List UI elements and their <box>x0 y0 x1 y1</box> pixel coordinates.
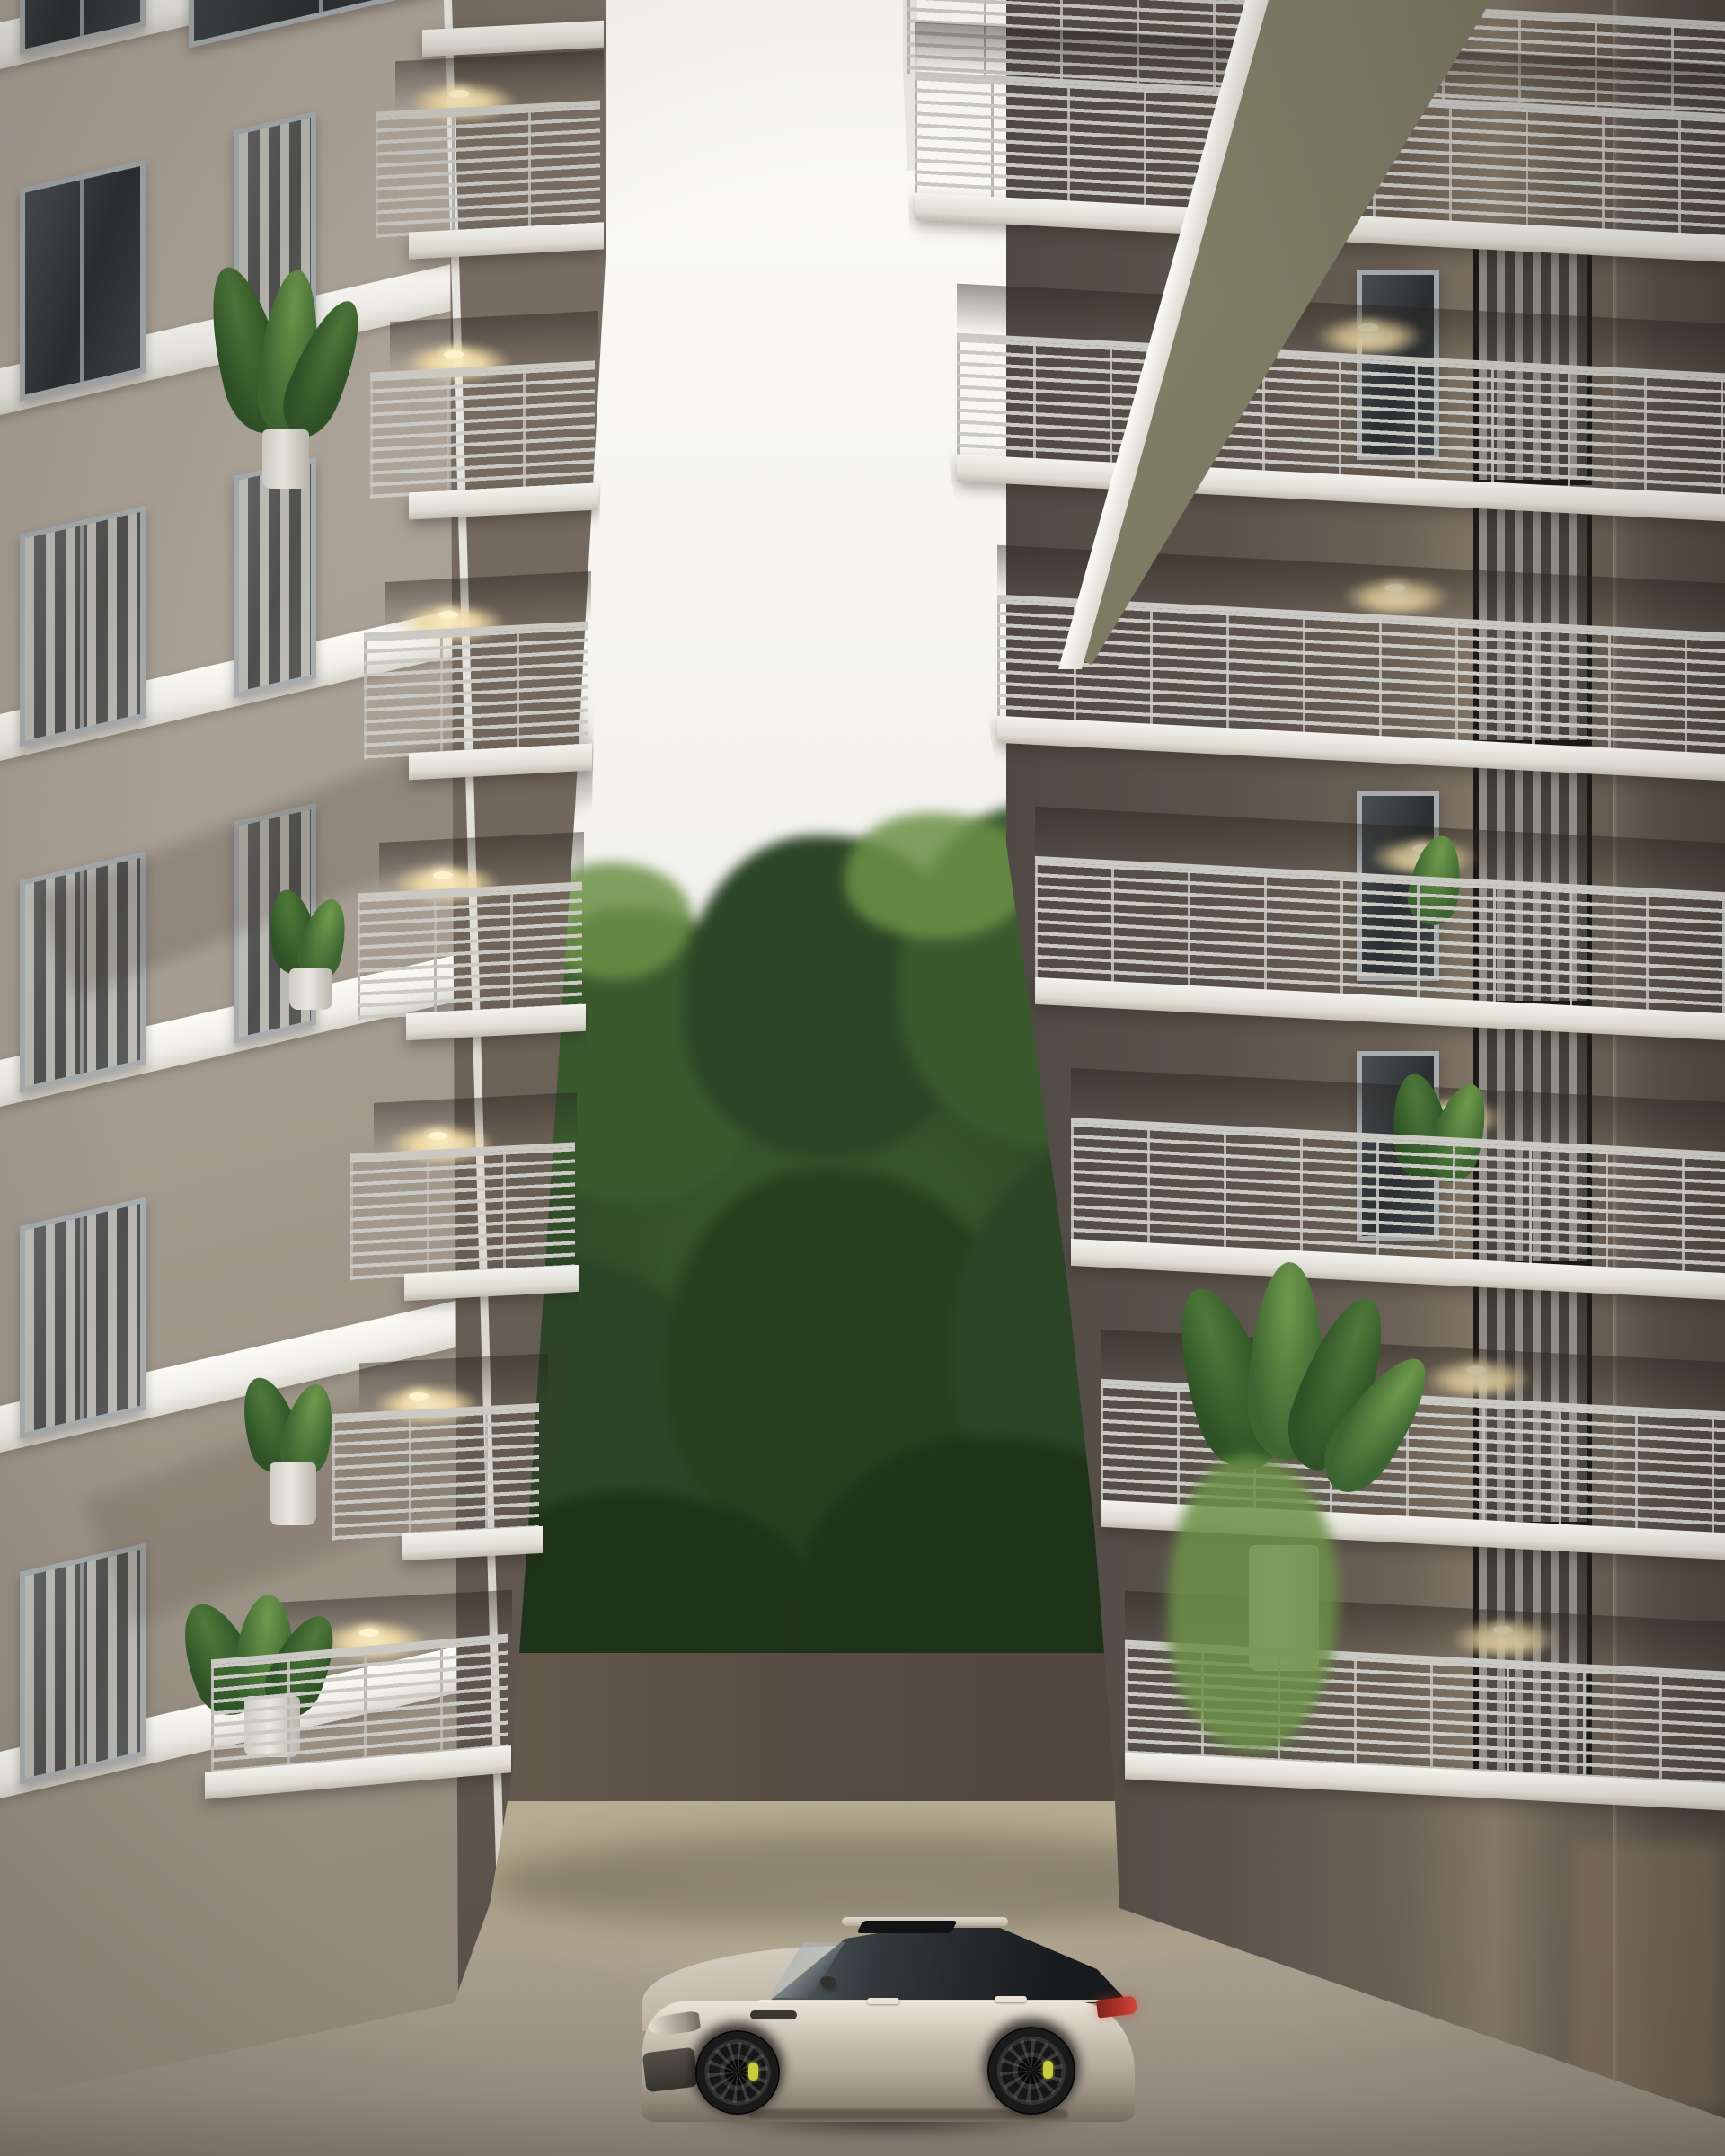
fender-vent <box>750 2010 797 2019</box>
window <box>20 506 146 747</box>
recessed-light <box>444 350 464 358</box>
window-mullion <box>80 179 84 382</box>
window-mullion <box>80 0 84 36</box>
balcony-railing <box>376 100 600 238</box>
balcony-railing <box>364 621 588 759</box>
balcony-railing <box>358 881 582 1020</box>
window-mullion <box>80 1216 84 1419</box>
window <box>20 160 146 402</box>
balcony-railing <box>332 1403 539 1541</box>
car-beltline-highlight <box>759 2000 1129 2002</box>
recessed-light <box>359 1629 379 1637</box>
recessed-light <box>438 611 458 619</box>
recessed-light <box>409 1392 429 1401</box>
taillight <box>1096 1995 1137 2018</box>
balcony-railing <box>370 360 595 499</box>
front-brake-caliper <box>748 2063 758 2081</box>
plant-pot <box>289 968 332 1010</box>
recessed-light <box>449 90 469 98</box>
window <box>234 457 316 698</box>
window <box>189 0 460 49</box>
window <box>20 1197 146 1439</box>
side-mirror <box>820 1976 836 1988</box>
window-mullion <box>80 525 84 728</box>
window-mullion <box>319 0 323 13</box>
courtyard-render <box>0 0 1725 2156</box>
plant-pot <box>262 429 309 489</box>
door-handle <box>995 1996 1027 2002</box>
front-bumper-intake <box>642 2047 699 2093</box>
door-handle <box>867 1998 899 2004</box>
rear-brake-caliper <box>1043 2061 1053 2079</box>
parked-car <box>642 1913 1138 2156</box>
rear-wheel <box>987 2027 1075 2115</box>
plant-pot <box>270 1462 316 1525</box>
recessed-light <box>433 871 453 879</box>
balcony-railing <box>350 1142 575 1280</box>
lit-wall-patch <box>1572 1842 1725 2111</box>
front-wheel <box>695 2030 780 2115</box>
recessed-light <box>428 1132 447 1140</box>
car-sunroof <box>856 1921 957 1933</box>
window-mullion <box>80 1562 84 1765</box>
foreground-tree <box>1168 1455 1339 1752</box>
